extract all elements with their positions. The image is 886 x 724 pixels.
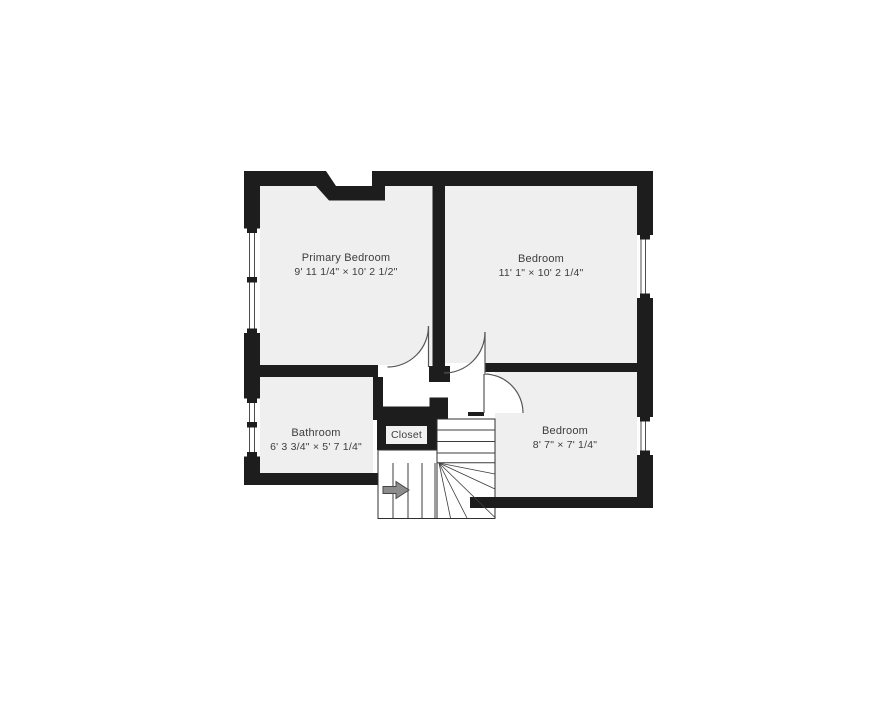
window-bedroom-bottom-east [637,417,653,455]
bedroom-top-name: Bedroom [499,252,584,266]
bedroom-bottom-dimensions: 8' 7" × 7' 1/4" [533,438,597,452]
bedroom-bottom-wall [470,497,653,508]
window-primary-west [244,229,260,334]
window-bathroom-west [244,399,260,457]
room-label-bedroom-top: Bedroom 11' 1" × 10' 2 1/4" [499,252,584,280]
primary-bedroom-dimensions: 9' 11 1/4" × 10' 2 1/2" [294,265,397,279]
bathroom-name: Bathroom [270,426,362,440]
closet-name: Closet [391,429,422,441]
closet-label-box: Closet [386,426,427,444]
floor-plan-drawing [0,0,886,724]
door-jamb-block [429,366,450,382]
room-label-bathroom: Bathroom 6' 3 3/4" × 5' 7 1/4" [270,426,362,454]
primary-bedroom-name: Primary Bedroom [294,251,397,265]
window-bedroom-top-east [637,235,653,298]
room-label-primary-bedroom: Primary Bedroom 9' 11 1/4" × 10' 2 1/2" [294,251,397,279]
bedroom-divider-wall [433,186,446,367]
floor-plan-page: Primary Bedroom 9' 11 1/4" × 10' 2 1/2" … [0,0,886,724]
hall-stub-wall [468,412,484,416]
bathroom-dimensions: 6' 3 3/4" × 5' 7 1/4" [270,440,362,454]
room-label-bedroom-bottom: Bedroom 8' 7" × 7' 1/4" [533,424,597,452]
bedroom-top-dimensions: 11' 1" × 10' 2 1/4" [499,266,584,280]
bedroom-bottom-name: Bedroom [533,424,597,438]
bathroom-floor [260,377,373,473]
